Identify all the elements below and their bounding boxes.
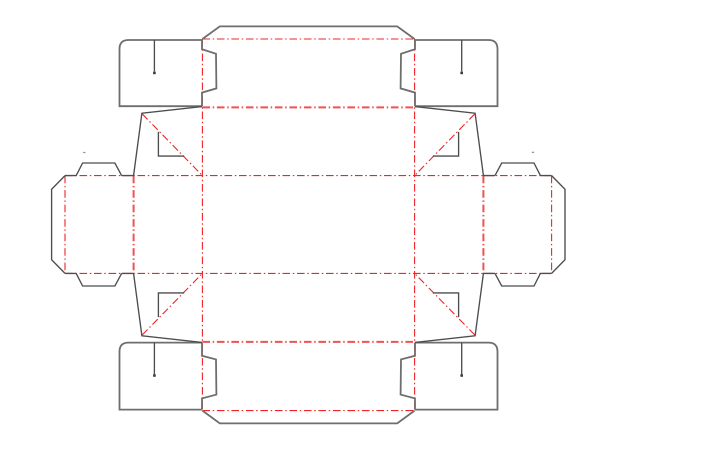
bottom-right-gusset <box>415 274 483 343</box>
left-dust-flap <box>52 163 134 286</box>
slit-end-dot-bottom-left <box>153 374 156 377</box>
fold-gusset-diagonal-bottom-left <box>142 274 202 335</box>
fold-gusset-diagonal-bottom-right <box>415 274 475 335</box>
fold-gusset-diagonal-top-right <box>415 114 475 175</box>
registration-mark-left <box>83 152 85 153</box>
top-lid-flap <box>202 26 414 39</box>
slit-end-dot-top-right <box>460 72 463 75</box>
slit-end-dot-top-left <box>153 72 156 75</box>
drawing-area <box>0 0 720 464</box>
registration-mark-right <box>532 152 534 153</box>
bottom-lid-flap <box>202 411 414 424</box>
top-left-gusset <box>134 107 202 176</box>
top-right-gusset <box>415 107 483 176</box>
dieline-drawing <box>0 0 720 464</box>
bottom-left-gusset <box>134 274 202 343</box>
slit-end-dot-bottom-right <box>460 374 463 377</box>
right-dust-flap <box>483 163 565 286</box>
fold-gusset-diagonal-top-left <box>142 114 202 175</box>
